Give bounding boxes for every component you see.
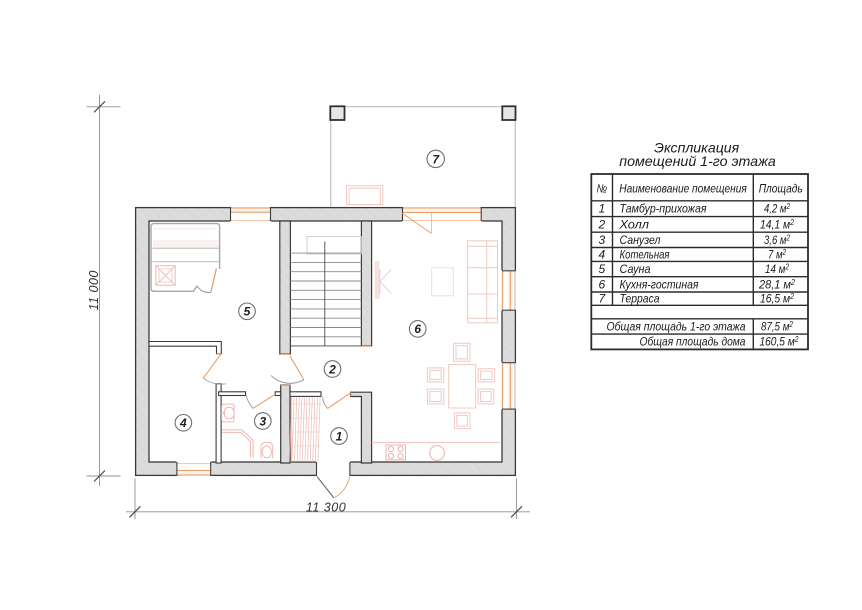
svg-text:Кухня-гостиная: Кухня-гостиная: [620, 277, 700, 291]
svg-text:Котельная: Котельная: [620, 248, 670, 262]
svg-text:14,1 м2: 14,1 м2: [760, 217, 794, 231]
svg-text:3: 3: [599, 233, 606, 247]
svg-text:4: 4: [179, 416, 187, 430]
svg-text:28,1 м2: 28,1 м2: [758, 277, 795, 291]
svg-text:Сауна: Сауна: [620, 262, 651, 276]
svg-text:7: 7: [599, 292, 607, 306]
svg-text:3,6 м2: 3,6 м2: [764, 233, 790, 247]
svg-text:2: 2: [598, 217, 606, 231]
svg-text:3: 3: [259, 414, 266, 428]
svg-text:6: 6: [414, 322, 421, 336]
svg-text:Тамбур-прихожая: Тамбур-прихожая: [620, 202, 708, 216]
svg-text:№: №: [597, 182, 608, 196]
svg-text:Наименование помещения: Наименование помещения: [619, 182, 747, 196]
svg-text:Холл: Холл: [618, 217, 649, 231]
svg-text:Общая площадь 1-го этажа: Общая площадь 1-го этажа: [607, 319, 746, 333]
svg-text:1: 1: [599, 202, 606, 216]
svg-text:5: 5: [244, 305, 251, 319]
svg-text:5: 5: [599, 262, 606, 276]
svg-text:Площадь: Площадь: [759, 182, 803, 196]
svg-text:160,5 м2: 160,5 м2: [760, 335, 799, 349]
svg-text:16,5 м2: 16,5 м2: [760, 292, 794, 306]
svg-text:Санузел: Санузел: [620, 233, 661, 247]
svg-text:11 300: 11 300: [306, 500, 346, 514]
svg-text:2: 2: [328, 362, 336, 376]
svg-text:4,2 м2: 4,2 м2: [764, 202, 790, 216]
svg-text:помещений 1-го этажа: помещений 1-го этажа: [619, 154, 776, 169]
svg-text:87,5 м2: 87,5 м2: [761, 319, 793, 333]
svg-text:Терраса: Терраса: [620, 292, 660, 306]
svg-text:11 000: 11 000: [87, 270, 101, 310]
svg-text:1: 1: [336, 429, 343, 443]
svg-text:6: 6: [599, 277, 606, 291]
svg-text:Общая площадь дома: Общая площадь дома: [640, 335, 746, 349]
svg-text:7 м2: 7 м2: [768, 248, 786, 262]
svg-text:14 м2: 14 м2: [765, 262, 789, 276]
svg-text:4: 4: [599, 248, 606, 262]
